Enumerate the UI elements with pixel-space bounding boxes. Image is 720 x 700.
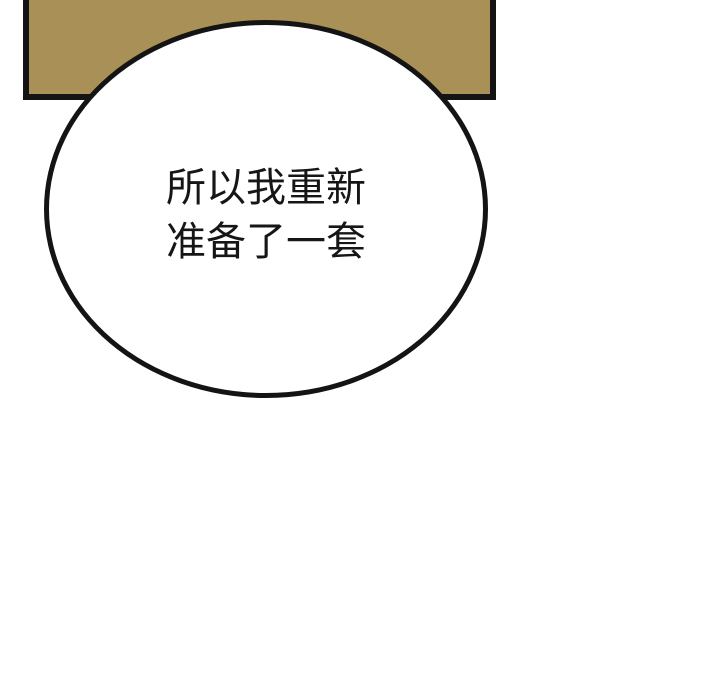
speech-bubble-text-line-1: 所以我重新 xyxy=(166,161,366,215)
speech-bubble: 所以我重新 准备了一套 xyxy=(44,20,488,398)
speech-bubble-text-line-2: 准备了一套 xyxy=(166,215,366,269)
comic-page: 所以我重新 准备了一套 xyxy=(0,0,720,700)
